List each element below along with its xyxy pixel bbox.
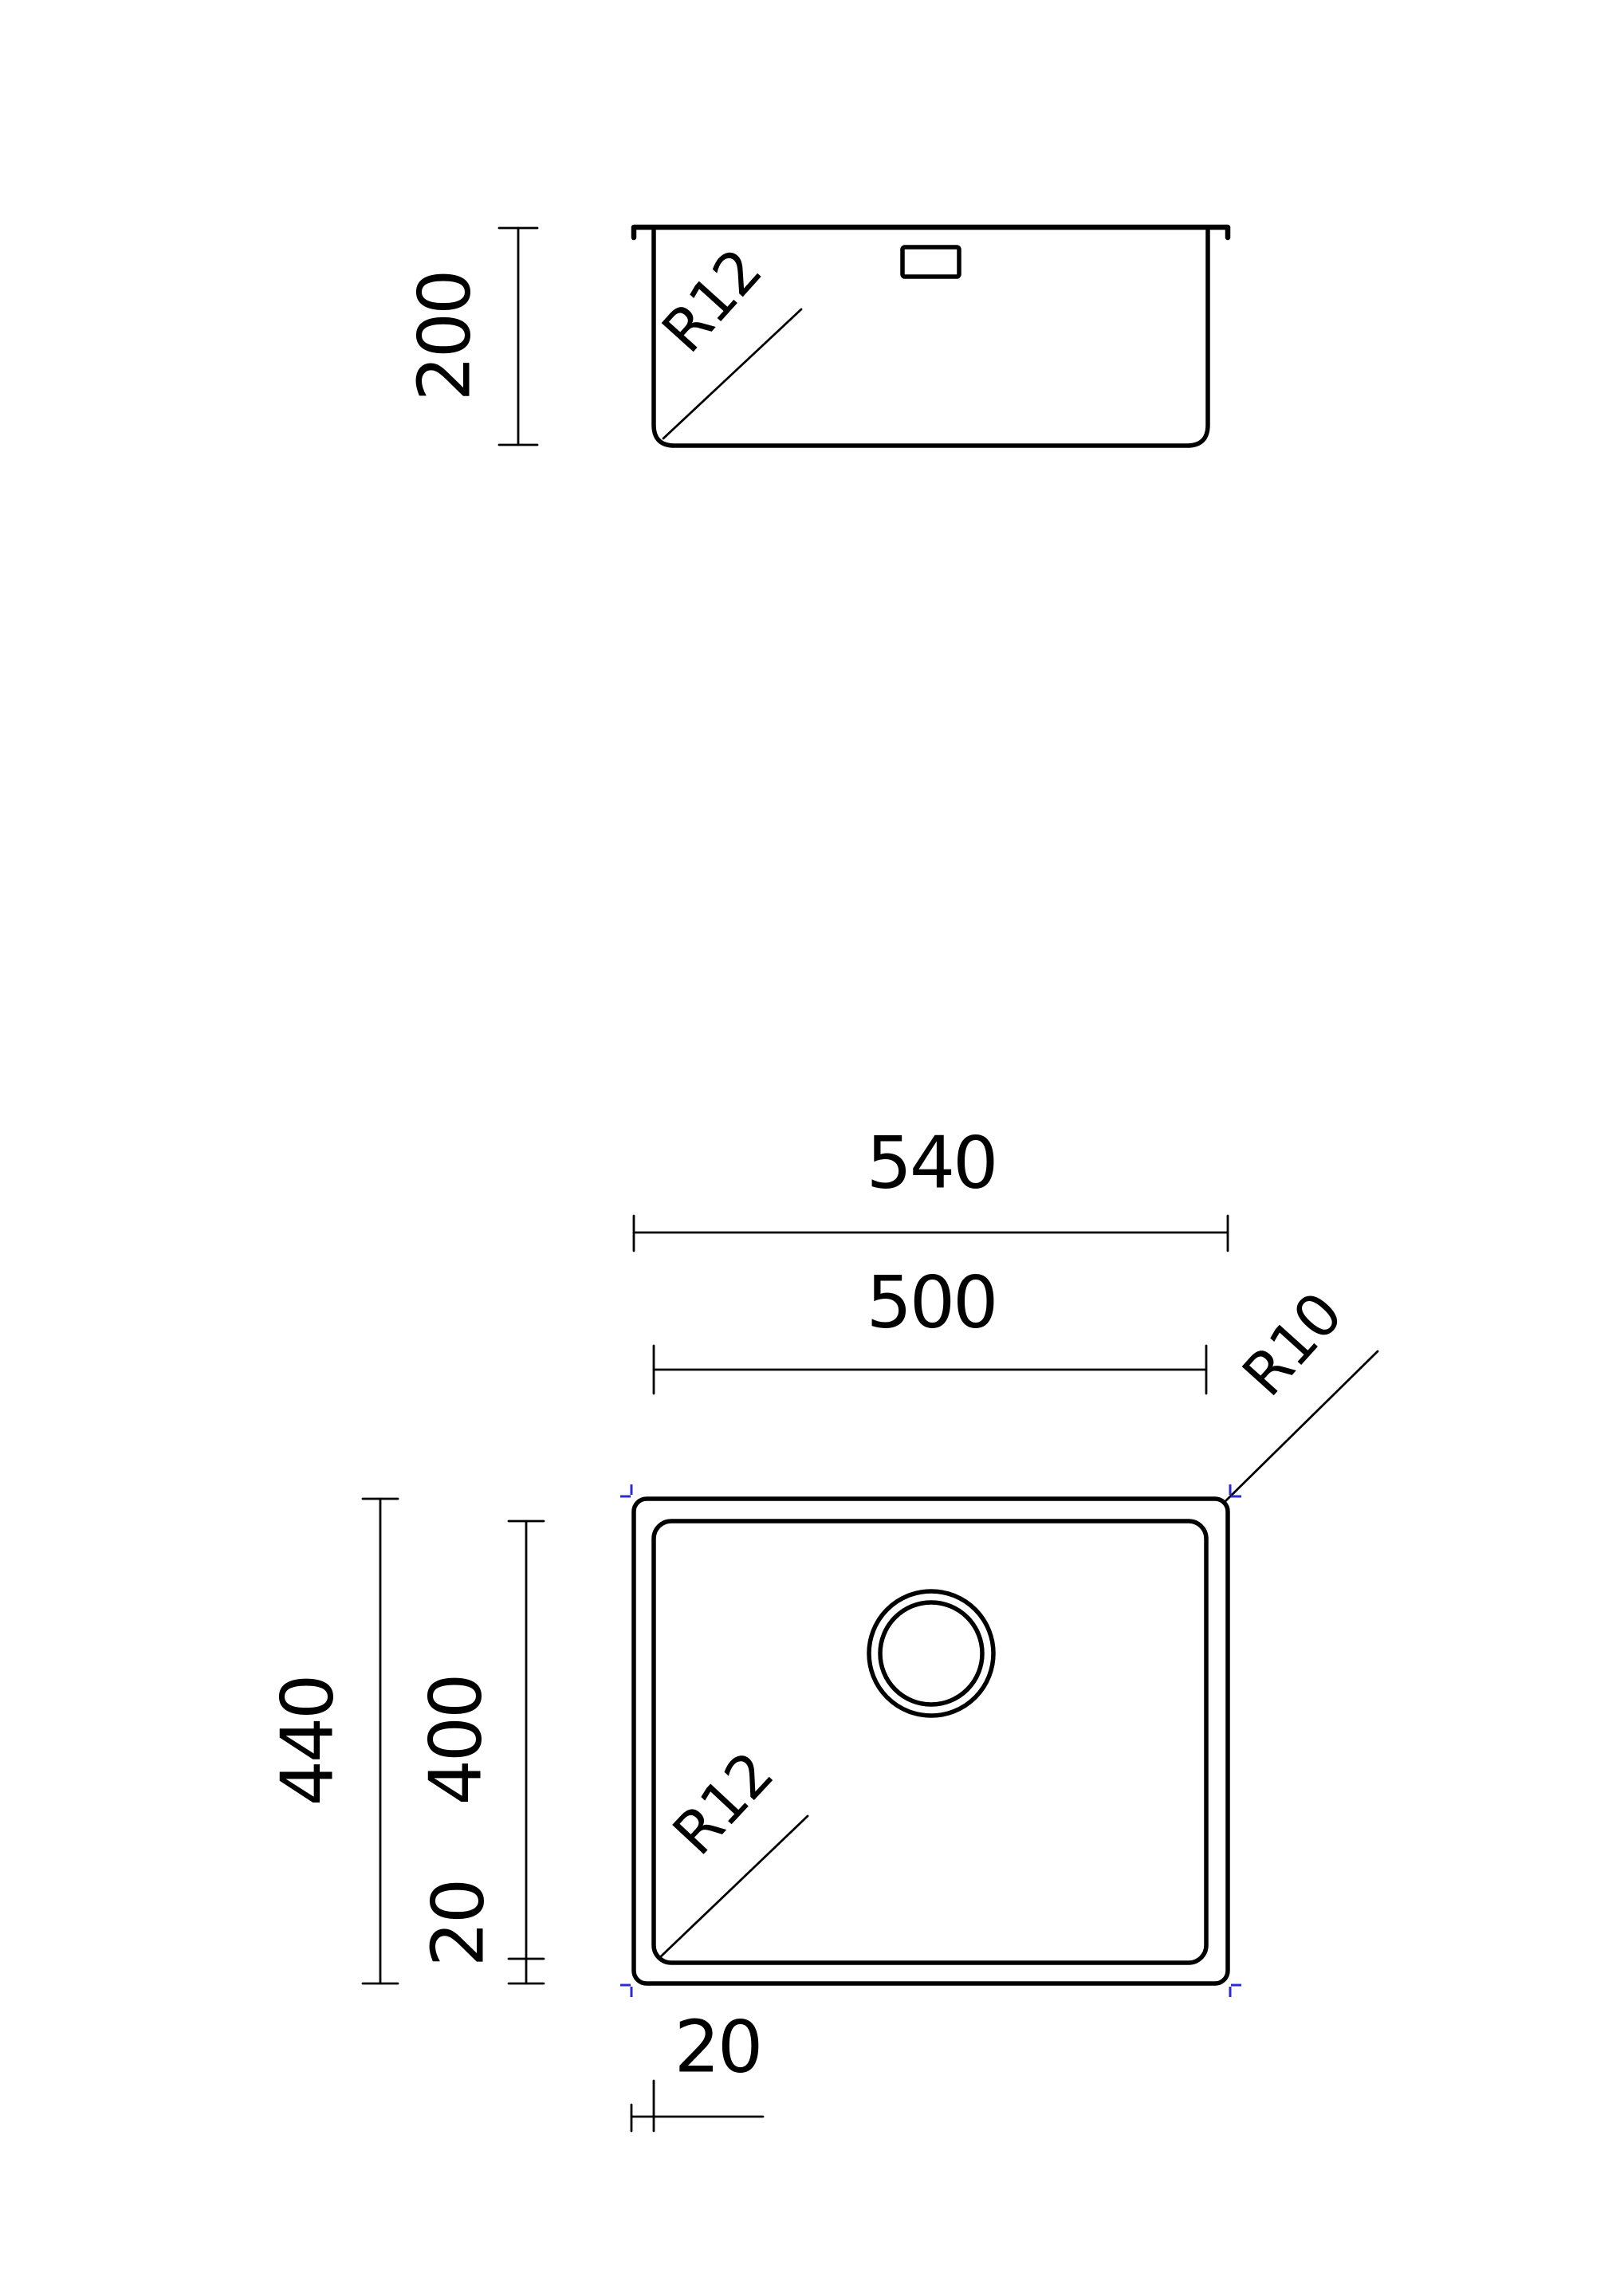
plan-outer-height-label: 440	[266, 1677, 350, 1807]
plan-inner-width-label: 500	[867, 1261, 997, 1345]
side-depth-dimension: 200	[403, 228, 538, 445]
plan-inset-bottom-label: 20	[674, 2006, 761, 2090]
side-rim-line	[634, 227, 1228, 238]
plan-inset-left-label: 20	[417, 1881, 501, 1968]
side-corner-radius-label: R12	[649, 237, 774, 365]
drawing-sheet: R12 200 540	[0, 0, 1624, 2296]
plan-outer-width-dimension: 540	[634, 1122, 1228, 1252]
plan-outer-rect	[634, 1499, 1228, 1983]
sink-technical-drawing: R12 200 540	[0, 0, 1624, 2296]
overflow-hole	[902, 247, 959, 277]
plan-view: 540 500 R10 440	[266, 1122, 1378, 2132]
inner-corner-radius-label: R12	[660, 1740, 786, 1869]
plan-inset-bottom-dimension: 20	[631, 2006, 763, 2132]
plan-outer-width-label: 540	[867, 1122, 997, 1205]
drain-outer-circle	[869, 1591, 993, 1716]
side-depth-label: 200	[403, 272, 487, 402]
plan-inner-height-label: 400	[415, 1676, 498, 1806]
side-view: R12 200	[403, 227, 1229, 446]
corner-marker-top-left	[620, 1484, 631, 1496]
corner-marker-bottom-left	[620, 1985, 631, 1997]
plan-inner-height-dimension: 400 20	[415, 1521, 545, 1983]
drain-inner-circle	[880, 1602, 982, 1704]
outer-corner-radius-label: R10	[1229, 1280, 1355, 1409]
plan-outer-height-dimension: 440	[266, 1499, 399, 1983]
corner-marker-bottom-right	[1230, 1985, 1241, 1997]
plan-inner-width-dimension: 500	[654, 1261, 1206, 1394]
